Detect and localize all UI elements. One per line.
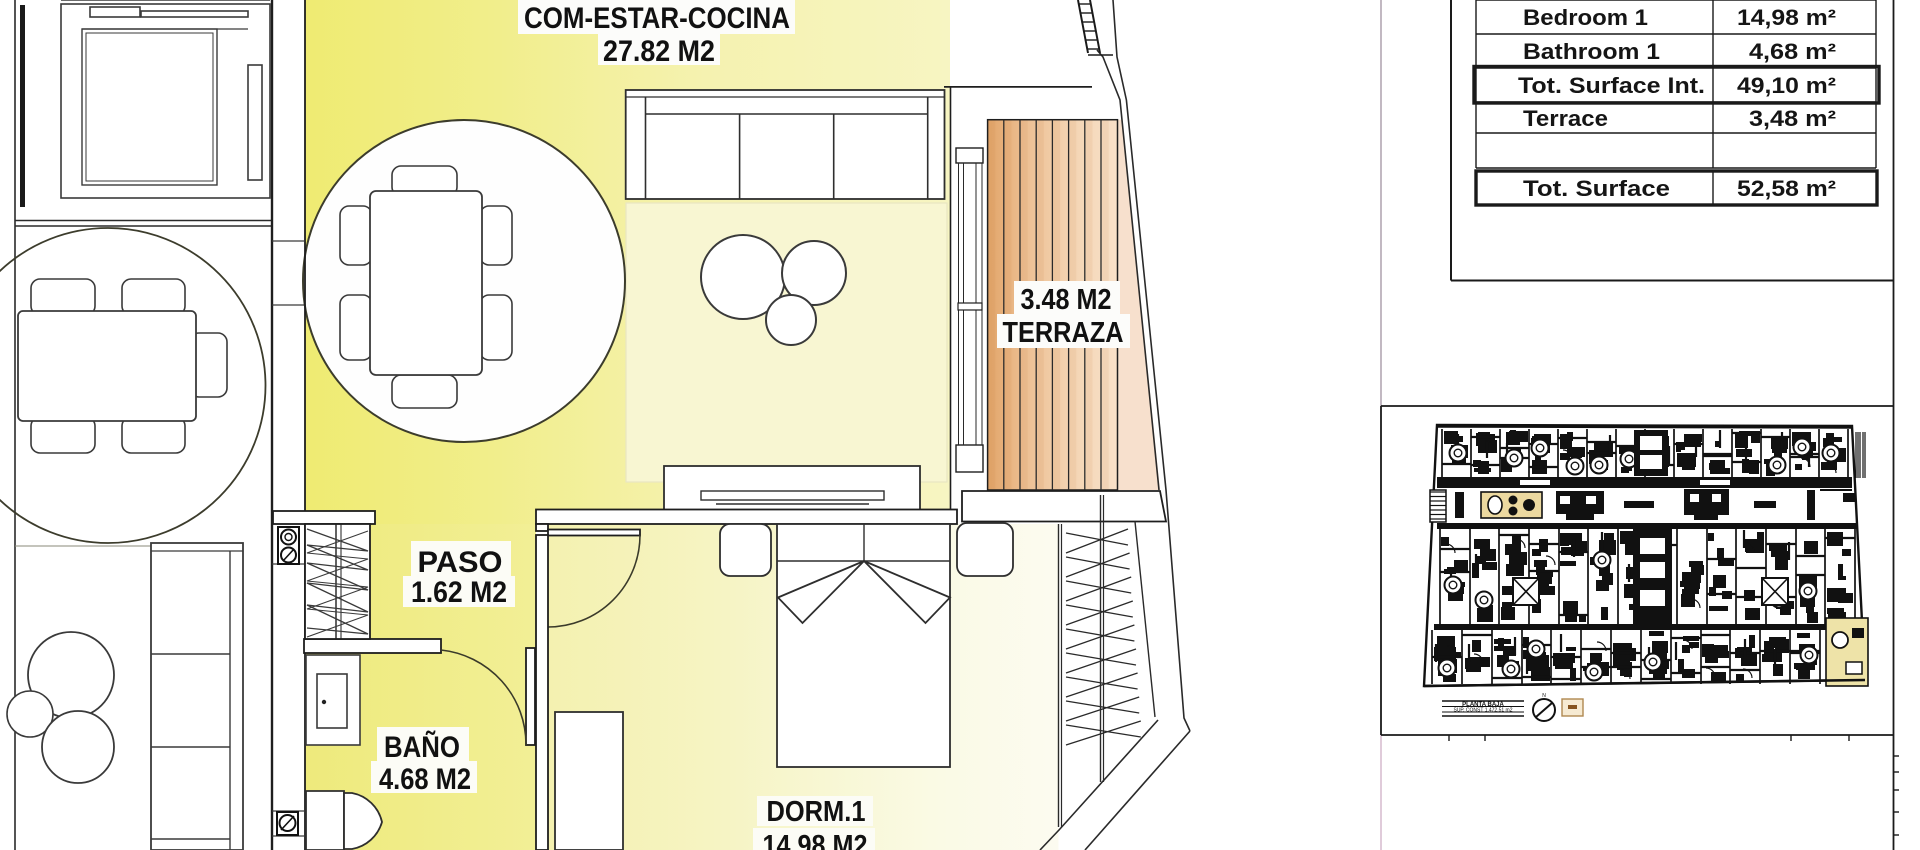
svg-text:4.68 M2: 4.68 M2 bbox=[379, 763, 471, 796]
svg-text:1.62 M2: 1.62 M2 bbox=[411, 576, 507, 609]
svg-text:14.98 M2: 14.98 M2 bbox=[763, 830, 868, 850]
svg-text:52,58 m²: 52,58 m² bbox=[1737, 176, 1836, 201]
svg-text:Tot. Surface Int.: Tot. Surface Int. bbox=[1518, 73, 1705, 98]
svg-text:49,10 m²: 49,10 m² bbox=[1737, 73, 1836, 98]
svg-text:3.48 M2: 3.48 M2 bbox=[1021, 284, 1112, 316]
svg-text:TERRAZA: TERRAZA bbox=[1003, 317, 1124, 349]
svg-text:SUP. CONST 1.472,51 m2: SUP. CONST 1.472,51 m2 bbox=[1453, 708, 1512, 714]
svg-text:Tot. Surface: Tot. Surface bbox=[1523, 176, 1670, 201]
svg-text:PASO: PASO bbox=[418, 546, 503, 579]
svg-text:3,48 m²: 3,48 m² bbox=[1749, 106, 1836, 131]
svg-text:14,98 m²: 14,98 m² bbox=[1737, 5, 1836, 30]
svg-text:COM-ESTAR-COCINA: COM-ESTAR-COCINA bbox=[524, 2, 790, 35]
svg-text:DORM.1: DORM.1 bbox=[767, 796, 866, 828]
svg-text:Bedroom 1: Bedroom 1 bbox=[1523, 5, 1648, 30]
svg-text:Bathroom 1: Bathroom 1 bbox=[1523, 39, 1660, 64]
svg-text:N: N bbox=[1542, 693, 1546, 699]
svg-text:4,68 m²: 4,68 m² bbox=[1749, 39, 1836, 64]
svg-text:Terrace: Terrace bbox=[1523, 106, 1608, 131]
svg-text:BAÑO: BAÑO bbox=[384, 730, 460, 764]
svg-text:27.82 M2: 27.82 M2 bbox=[603, 35, 715, 68]
